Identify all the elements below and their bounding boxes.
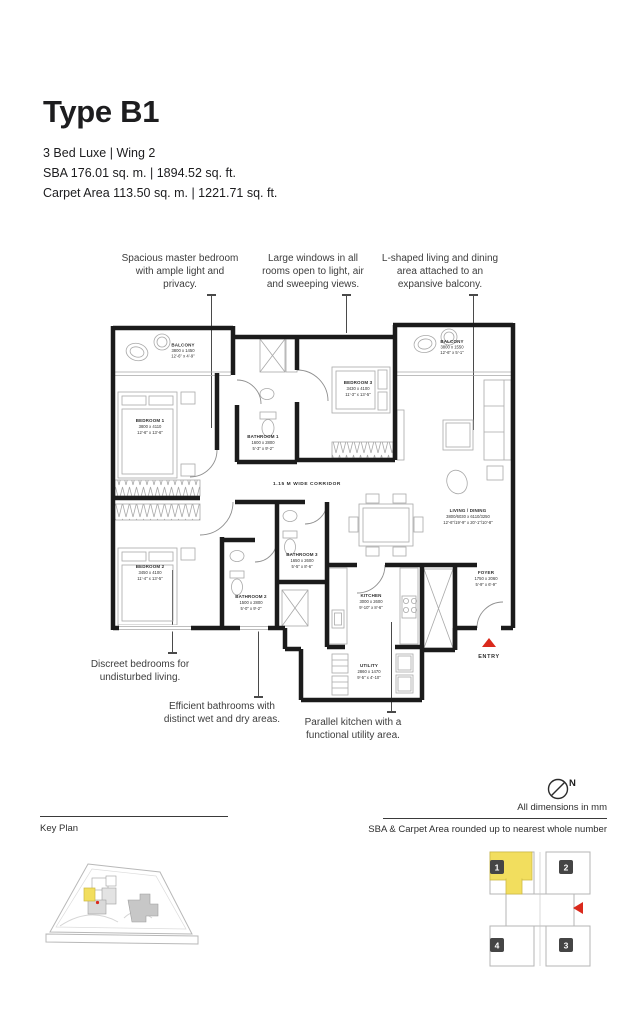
svg-text:1500 x 2800: 1500 x 2800 bbox=[239, 600, 263, 605]
carpet-area-line: Carpet Area 113.50 sq. m. | 1221.71 sq. … bbox=[43, 186, 277, 200]
room-label-balcony-1: BALCONY 3800 x 1450 12'-6" x 4'-9" bbox=[171, 343, 195, 359]
svg-text:1750 x 2060: 1750 x 2060 bbox=[474, 576, 498, 581]
svg-text:12'-6" x 4'-9": 12'-6" x 4'-9" bbox=[171, 354, 195, 359]
svg-text:11'-3" x 13'-5": 11'-3" x 13'-5" bbox=[345, 392, 371, 397]
svg-text:5'-0" x 9'-2": 5'-0" x 9'-2" bbox=[240, 606, 262, 611]
svg-text:LIVING / DINING: LIVING / DINING bbox=[450, 508, 487, 513]
leader-cap bbox=[387, 711, 396, 713]
svg-text:BEDROOM 3: BEDROOM 3 bbox=[344, 380, 373, 385]
svg-text:UTILITY: UTILITY bbox=[360, 663, 378, 668]
room-label-living-dining: LIVING / DINING 3800/6030 x 6110/3250 12… bbox=[443, 508, 493, 525]
key-plan-label: Key Plan bbox=[40, 823, 78, 834]
north-compass-icon: N bbox=[542, 772, 586, 806]
room-label-kitchen: KITCHEN 3000 x 2600 9'-10" x 8'-6" bbox=[359, 593, 383, 610]
room-label-utility: UTILITY 2860 x 1470 9'-5" x 4'-10" bbox=[357, 663, 381, 680]
svg-text:KITCHEN: KITCHEN bbox=[360, 593, 381, 598]
svg-text:5'-3" x 9'-2": 5'-3" x 9'-2" bbox=[252, 446, 274, 451]
unit-badge-1: 1 bbox=[495, 863, 500, 873]
svg-text:BEDROOM 1: BEDROOM 1 bbox=[136, 418, 165, 423]
dimensions-note: All dimensions in mm bbox=[407, 802, 607, 813]
svg-text:BATHROOM 1: BATHROOM 1 bbox=[247, 434, 279, 439]
unit-badge-2: 2 bbox=[564, 863, 569, 873]
callout-parallel-kitchen: Parallel kitchen with a functional utili… bbox=[288, 716, 418, 742]
divider-right bbox=[383, 818, 607, 819]
svg-text:3000 x 2600: 3000 x 2600 bbox=[359, 599, 383, 604]
room-label-bathroom-3: BATHROOM 3 1650 x 2600 5'-5" x 8'-6" bbox=[286, 552, 318, 569]
svg-text:11'-4" x 13'-5": 11'-4" x 13'-5" bbox=[137, 576, 163, 581]
svg-text:FOYER: FOYER bbox=[478, 570, 495, 575]
room-label-bedroom-3: BEDROOM 3 3430 x 4100 11'-3" x 13'-5" bbox=[344, 380, 373, 397]
svg-text:3800 x 1450: 3800 x 1450 bbox=[171, 348, 195, 353]
unit-badge-4: 4 bbox=[495, 941, 500, 951]
site-you-are-here-marker bbox=[96, 901, 99, 904]
room-label-bedroom-1: BEDROOM 1 3800 x 4110 12'-6" x 13'-6" bbox=[136, 418, 165, 435]
corridor-label: 1.15 M WIDE CORRIDOR bbox=[273, 481, 341, 487]
svg-text:12'-6" x 13'-6": 12'-6" x 13'-6" bbox=[137, 430, 163, 435]
sba-area-line: SBA 176.01 sq. m. | 1894.52 sq. ft. bbox=[43, 166, 236, 180]
entry-label: ENTRY bbox=[478, 654, 500, 660]
brochure-page: Type B1 3 Bed Luxe | Wing 2 SBA 176.01 s… bbox=[0, 0, 633, 1024]
key-plan-site-map bbox=[40, 848, 225, 970]
room-label-bathroom-1: BATHROOM 1 1600 x 2800 5'-3" x 9'-2" bbox=[247, 434, 279, 451]
unit-badge-3: 3 bbox=[564, 941, 569, 951]
divider-left bbox=[40, 816, 228, 817]
room-label-bathroom-2: BATHROOM 2 1500 x 2800 5'-0" x 9'-2" bbox=[235, 594, 267, 611]
page-title: Type B1 bbox=[43, 94, 159, 130]
room-label-balcony-2: BALCONY 3800 x 1550 12'-6" x 5'-1" bbox=[440, 339, 464, 355]
callout-l-shaped-living: L-shaped living and dining area attached… bbox=[380, 252, 500, 291]
unit-type-subtitle: 3 Bed Luxe | Wing 2 bbox=[43, 146, 155, 160]
callout-large-windows: Large windows in all rooms open to light… bbox=[253, 252, 373, 291]
wardrobe-strips bbox=[115, 442, 393, 520]
svg-text:3800/6030 x 6110/3250: 3800/6030 x 6110/3250 bbox=[446, 514, 490, 519]
callout-master-bedroom: Spacious master bedroom with ample light… bbox=[120, 252, 240, 291]
svg-text:3800 x 4110: 3800 x 4110 bbox=[139, 424, 162, 429]
entry-arrow-icon bbox=[482, 638, 496, 647]
svg-text:1600 x 2800: 1600 x 2800 bbox=[251, 440, 275, 445]
svg-text:5'-5" x 8'-6": 5'-5" x 8'-6" bbox=[291, 564, 313, 569]
svg-text:5'-9" x 6'-9": 5'-9" x 6'-9" bbox=[475, 582, 497, 587]
key-plan-wing-map: 1 2 3 4 bbox=[478, 846, 602, 972]
floor-plan: BALCONY 3800 x 1450 12'-6" x 4'-9" BEDRO… bbox=[105, 310, 535, 710]
north-label: N bbox=[569, 778, 576, 789]
svg-text:BATHROOM 3: BATHROOM 3 bbox=[286, 552, 318, 557]
svg-text:9'-10" x 8'-6": 9'-10" x 8'-6" bbox=[359, 605, 383, 610]
svg-text:9'-5" x 4'-10": 9'-5" x 4'-10" bbox=[357, 675, 381, 680]
svg-text:2860 x 1470: 2860 x 1470 bbox=[357, 669, 381, 674]
svg-text:3450 x 4100: 3450 x 4100 bbox=[138, 570, 162, 575]
svg-text:3430 x 4100: 3430 x 4100 bbox=[346, 386, 370, 391]
svg-text:BALCONY: BALCONY bbox=[171, 343, 194, 348]
svg-text:12'-6" x 5'-1": 12'-6" x 5'-1" bbox=[440, 350, 464, 355]
room-label-foyer: FOYER 1750 x 2060 5'-9" x 6'-9" bbox=[474, 570, 498, 587]
svg-text:12'-6"/19'-9" x 20'-1"/10'-8": 12'-6"/19'-9" x 20'-1"/10'-8" bbox=[443, 520, 493, 525]
svg-text:BATHROOM 2: BATHROOM 2 bbox=[235, 594, 267, 599]
site-highlight-wing bbox=[84, 888, 95, 901]
svg-text:3800 x 1550: 3800 x 1550 bbox=[440, 345, 464, 350]
room-label-bedroom-2: BEDROOM 2 3450 x 4100 11'-4" x 13'-5" bbox=[136, 564, 165, 581]
svg-text:BALCONY: BALCONY bbox=[440, 339, 463, 344]
rounding-note: SBA & Carpet Area rounded up to nearest … bbox=[327, 824, 607, 835]
svg-text:1650 x 2600: 1650 x 2600 bbox=[290, 558, 314, 563]
svg-text:BEDROOM 2: BEDROOM 2 bbox=[136, 564, 165, 569]
